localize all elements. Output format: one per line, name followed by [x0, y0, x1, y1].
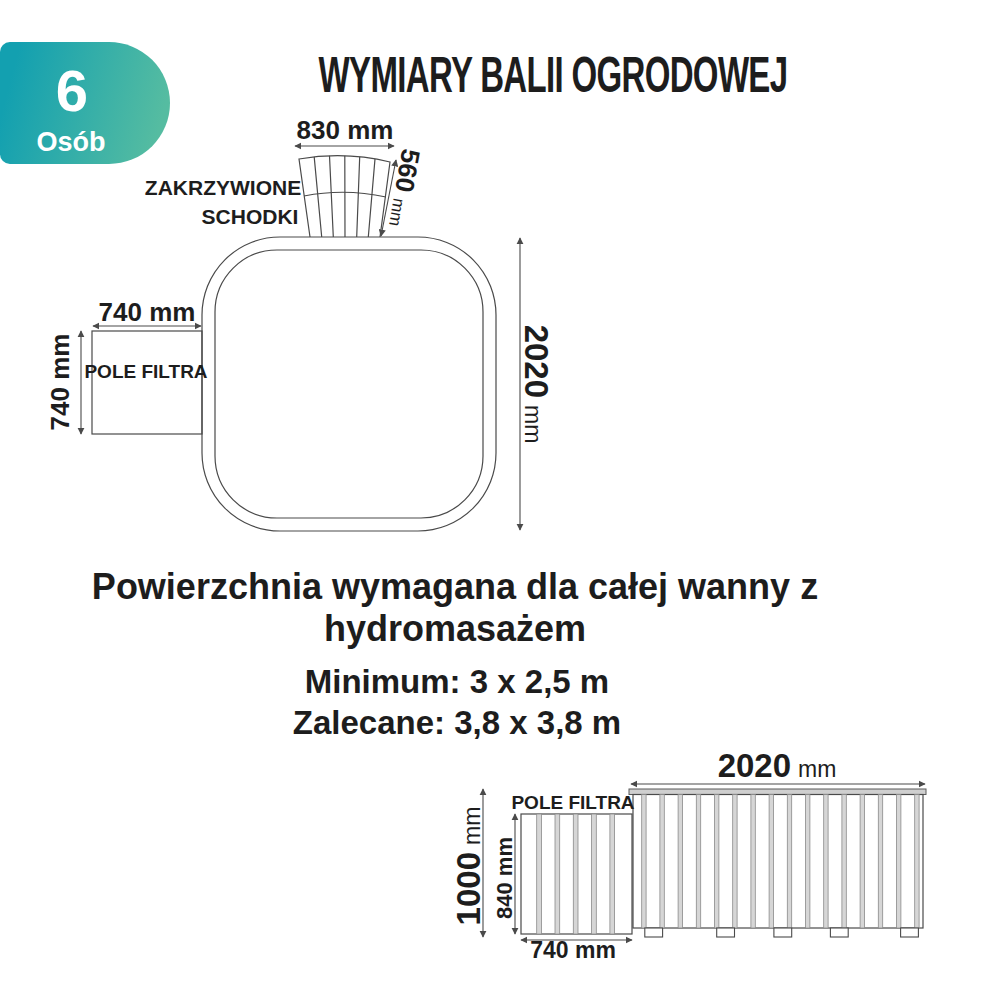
filter-box-outline [92, 331, 202, 434]
dim-value: 1000 [450, 852, 487, 925]
tub-wall-slats [642, 795, 919, 929]
tub-feet [645, 928, 919, 937]
page-title: WYMIARY BALII OGRODOWEJ [319, 49, 788, 102]
area-heading-line1: Powierzchnia wymagana dla całej wanny z [92, 568, 818, 606]
tub-outer-outline [202, 237, 496, 531]
side-view-diagram [440, 750, 970, 990]
dim-label-filter-depth: 740 mm [47, 334, 74, 431]
area-heading-line2: hydromasażem [324, 610, 586, 648]
dim-label-tub-length: 2020mm [519, 325, 554, 444]
dim-label-side-filter-width: 740 mm [530, 938, 616, 962]
dim-value: 2020 [518, 325, 555, 398]
dim-label-filter-width: 740 mm [99, 299, 196, 326]
steps-label-line2: SCHODKI [202, 206, 299, 228]
steps-fan-radial-lines [314, 156, 375, 237]
steps-label-line1: ZAKRZYWIONE [145, 177, 301, 199]
area-minimum: Minimum: 3 x 2,5 m [305, 665, 609, 700]
side-filter-label: POLE FILTRA [511, 793, 634, 813]
dim-label-side-filter-height: 840 mm [493, 837, 516, 919]
filter-housing-slats [537, 814, 615, 934]
dim-unit: mm [459, 807, 485, 845]
dim-label-steps-width: 830 mm [297, 117, 394, 144]
dim-unit: mm [520, 405, 546, 443]
tub-inner-outline [215, 250, 483, 518]
dim-value: 2020 [718, 747, 791, 784]
filter-box-label: POLE FILTRA [84, 362, 207, 382]
dim-unit: mm [385, 197, 409, 228]
dim-label-side-total-height: 1000mm [452, 807, 487, 926]
dim-label-side-tub-length: 2020mm [718, 749, 837, 784]
tub-rim [629, 789, 926, 795]
dim-unit: mm [798, 756, 836, 782]
area-recommended: Zalecane: 3,8 x 3,8 m [293, 706, 621, 741]
